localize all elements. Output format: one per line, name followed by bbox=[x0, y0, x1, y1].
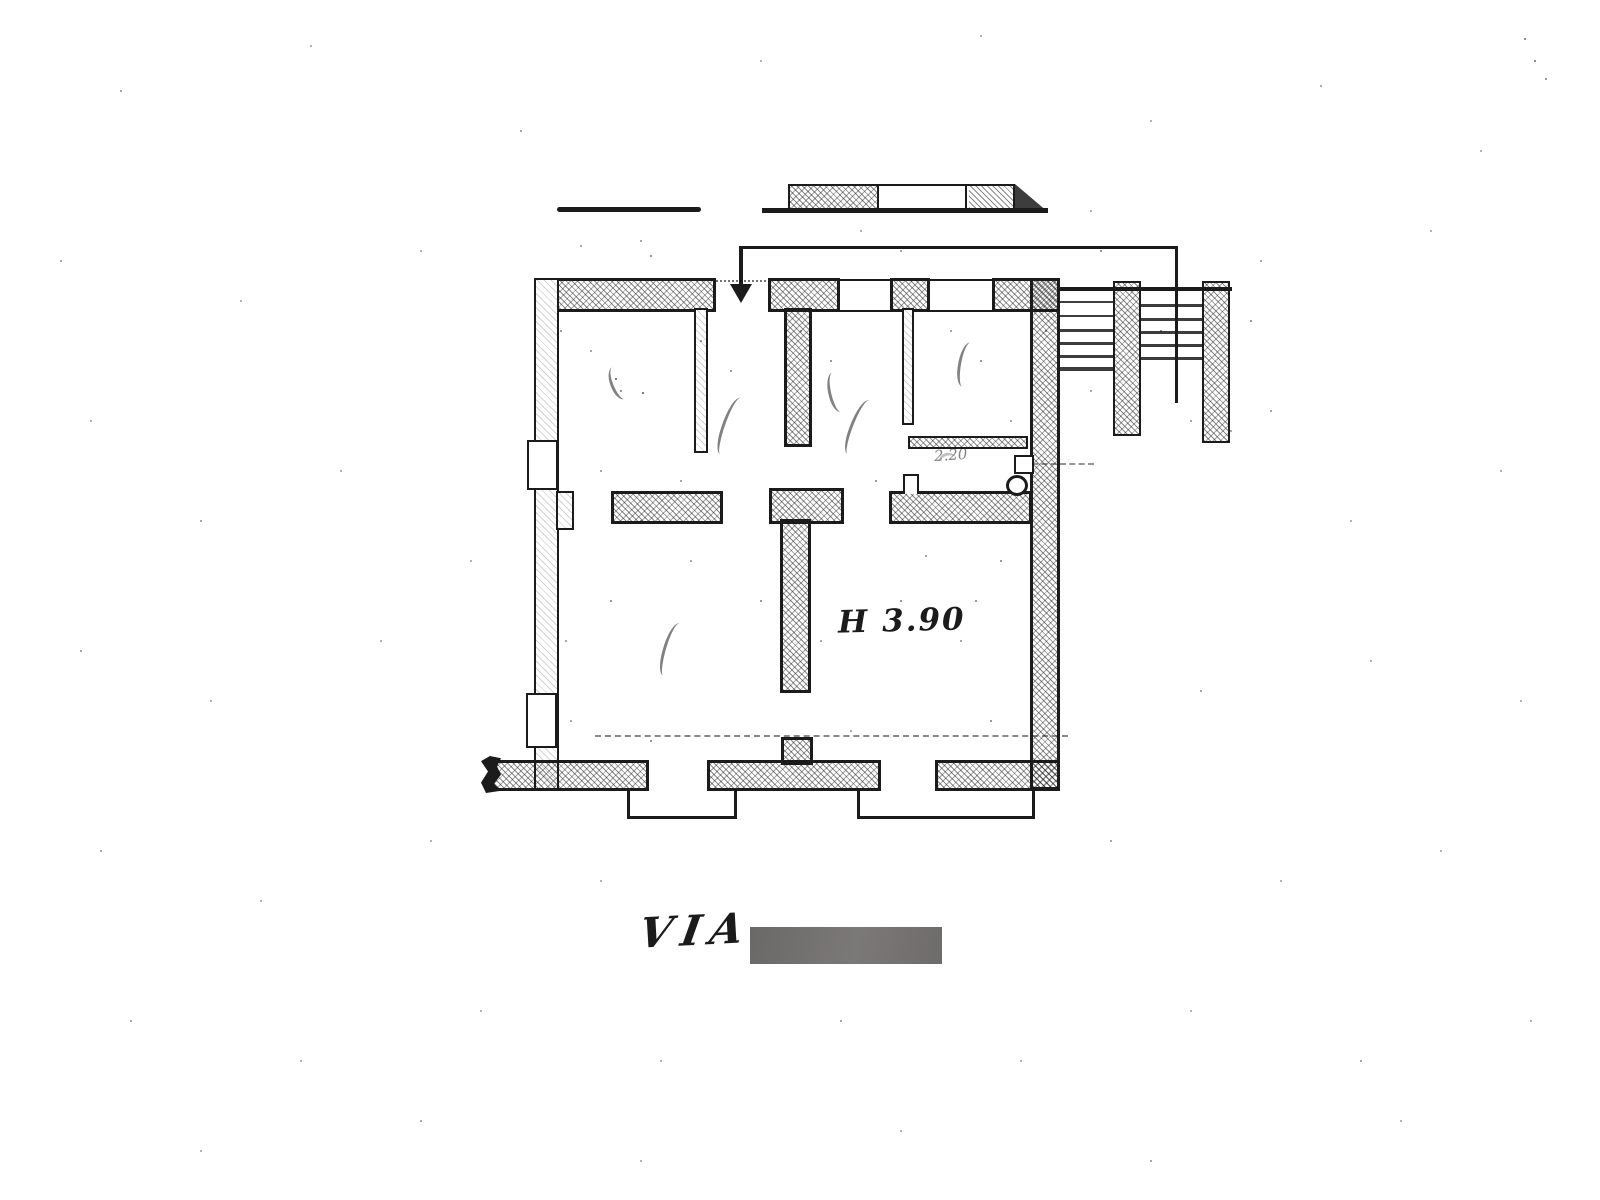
fixture-dashed-line bbox=[1032, 463, 1094, 465]
canopy-hatched-left bbox=[790, 186, 879, 208]
wall-mid-T-stem bbox=[780, 519, 811, 693]
stair-tread bbox=[1058, 315, 1114, 317]
canopy-band bbox=[788, 184, 1015, 210]
scan-noise-layer-plan bbox=[0, 0, 2, 2]
wall-bottom-right bbox=[935, 760, 1060, 791]
entrance-threshold-dotted-line bbox=[716, 280, 770, 282]
wall-top-segment-2 bbox=[768, 278, 840, 312]
window-left-2 bbox=[526, 693, 557, 748]
redaction-box bbox=[750, 927, 942, 964]
section-dashed-line bbox=[595, 735, 1068, 737]
wall-interior-bath-vertical bbox=[902, 308, 914, 425]
pencil-scribble bbox=[656, 621, 687, 679]
entry-route-line-vertical bbox=[1175, 246, 1178, 403]
bottom-wall-pier bbox=[781, 737, 813, 765]
wall-interior-central-upper bbox=[784, 308, 812, 447]
bath-dimension-annotation: 2.20 bbox=[933, 445, 968, 465]
stair-tread bbox=[1141, 304, 1202, 307]
stair-column-middle bbox=[1113, 281, 1141, 436]
pencil-scribble bbox=[955, 341, 978, 388]
wall-bathroom-horizontal bbox=[908, 436, 1028, 449]
wall-bottom-left bbox=[489, 760, 649, 791]
terrace-left bbox=[627, 789, 737, 819]
ceiling-height-annotation: H 3.90 bbox=[838, 601, 966, 640]
stair-tread bbox=[1058, 342, 1114, 345]
canopy-hatched-right bbox=[969, 186, 1013, 208]
pencil-scribble bbox=[713, 395, 748, 457]
pencil-scribble bbox=[841, 397, 877, 457]
wall-right bbox=[1030, 278, 1060, 790]
wall-top-segment-1 bbox=[534, 278, 716, 312]
pencil-scribble bbox=[604, 364, 634, 402]
canopy-window bbox=[881, 186, 967, 208]
stair-tread bbox=[1141, 344, 1202, 347]
window-top-2 bbox=[928, 279, 994, 312]
terrace-right bbox=[857, 789, 1035, 819]
stair-tread bbox=[1058, 367, 1114, 371]
window-top-1 bbox=[838, 279, 892, 312]
window-left-1 bbox=[527, 440, 558, 490]
stair-tread bbox=[1141, 318, 1202, 321]
wc-fixture-circle bbox=[1006, 475, 1028, 496]
entrance-arrow-head-icon bbox=[730, 284, 752, 303]
wall-mid-segment-right bbox=[889, 491, 1032, 524]
stair-column-right bbox=[1202, 281, 1230, 443]
entry-route-line-horizontal bbox=[740, 246, 1178, 249]
wall-mid-segment-left bbox=[611, 491, 723, 524]
wall-top-segment-3 bbox=[890, 278, 930, 312]
stair-tread bbox=[1058, 301, 1114, 303]
stair-tread bbox=[1141, 331, 1202, 334]
street-label: VIA bbox=[636, 903, 757, 958]
stair-tread bbox=[1058, 329, 1114, 332]
scanned-floor-plan-sheet: H 3.90 2.20 VIA bbox=[0, 0, 1600, 1200]
scan-noise-layer bbox=[0, 0, 2, 2]
elevation-line-left bbox=[557, 207, 701, 212]
stair-tread bbox=[1141, 357, 1202, 360]
stair-tread bbox=[1058, 355, 1114, 358]
door-notch-mid-right bbox=[903, 474, 919, 494]
left-wall-pier bbox=[556, 491, 574, 530]
bath-fixture-box bbox=[1014, 455, 1034, 474]
wall-interior-left-vertical bbox=[694, 308, 708, 453]
pencil-scribble bbox=[823, 370, 850, 413]
